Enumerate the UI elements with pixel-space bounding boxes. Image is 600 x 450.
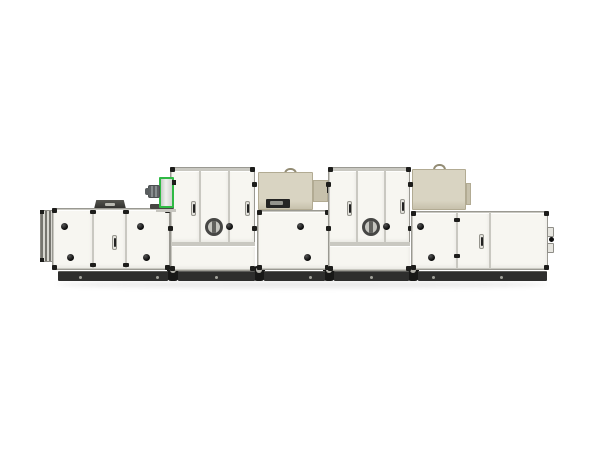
handle-slot [349,204,351,213]
cassette-box-2 [410,161,472,211]
handle-slot [114,238,116,247]
access-panel [491,213,547,268]
pipe-connection [547,227,554,237]
tall-section-1 [170,167,255,271]
corner-bracket [328,167,333,172]
corner-bracket [406,167,411,172]
panel-knob [143,254,150,261]
base-rail [264,271,325,281]
corner-bracket [328,266,333,271]
panel-clamp [454,254,460,258]
panel-knob [304,254,311,261]
edge-clamp [326,226,331,231]
base-rail [58,271,168,281]
louver-corner [40,210,44,214]
base-rail [334,271,409,281]
inspection-window [205,218,223,236]
corner-bracket [257,210,262,215]
corner-bracket [411,265,416,270]
corner-bracket [544,211,549,216]
panel-knob [61,223,68,230]
base-foot-bolt [215,276,218,279]
handle-slot [402,202,404,211]
panel-clamp [123,210,129,214]
mid-section [257,210,330,270]
access-panel [330,171,356,242]
window-frame-bar [369,221,373,233]
base-foot-bolt [500,276,503,279]
panel-clamp [454,218,460,222]
base-rail [178,271,255,281]
cassette-vent-slot [266,199,290,208]
cassette-box-1 [256,166,330,212]
access-panel [94,210,125,268]
base-foot-bolt [309,276,312,279]
edge-clamp [252,182,257,187]
connection-knob [549,237,554,242]
filter-section [52,208,170,270]
edge-clamp [408,182,413,187]
edge-clamp [168,226,173,231]
base-foot-bolt [432,276,435,279]
louver-corner [40,258,44,262]
corner-bracket [170,266,175,271]
panel-knob [226,223,233,230]
inspection-window [362,218,380,236]
panel-clamp [90,263,96,267]
handle-slot [193,204,195,213]
panel-handle [400,199,405,214]
panel-clamp [90,210,96,214]
corner-bracket [411,211,416,216]
panel-knob [428,254,435,261]
access-panel [386,171,409,242]
lower-band-panel [330,246,410,269]
corner-bracket [52,265,57,270]
panel-handle [479,234,484,249]
panel-knob [297,223,304,230]
lower-band-panel [172,246,255,269]
panel-handle [112,235,117,250]
fan-ledge [156,209,176,212]
corner-bracket [52,208,57,213]
panel-handle [191,201,196,216]
corner-bracket [544,265,549,270]
hood-label [105,203,115,206]
motor-end-cap [145,188,149,195]
panel-clamp [123,263,129,267]
base-rail [418,271,547,281]
base-foot-bolt [370,276,373,279]
handle-slot [481,237,483,246]
panel-knob [417,223,424,230]
base-foot-bolt [156,276,159,279]
panel-knob [137,223,144,230]
corner-bracket [257,265,262,270]
panel-knob [383,223,390,230]
base-foot-bolt [79,276,82,279]
cassette-side-tab [466,183,471,205]
panel-handle [245,201,250,216]
pipe-connection [547,243,554,253]
corner-bracket [250,167,255,172]
fan-clamp [172,180,176,185]
access-panel [458,213,489,268]
access-panel [230,171,254,242]
vent-slot-glass [270,201,283,205]
screenshot-canvas [0,0,600,450]
handle-slot [247,204,249,213]
panel-handle [347,201,352,216]
fan-assembly [142,170,178,214]
access-panel [413,213,456,268]
end-section [411,211,548,270]
fan-motor [148,185,160,198]
access-panel [259,212,329,268]
tall-section-2 [328,167,410,271]
air-handling-unit [40,160,560,295]
window-frame-bar [212,221,216,233]
cassette-body [412,169,466,210]
edge-clamp [326,182,331,187]
corner-bracket [250,266,255,271]
panel-knob [67,254,74,261]
